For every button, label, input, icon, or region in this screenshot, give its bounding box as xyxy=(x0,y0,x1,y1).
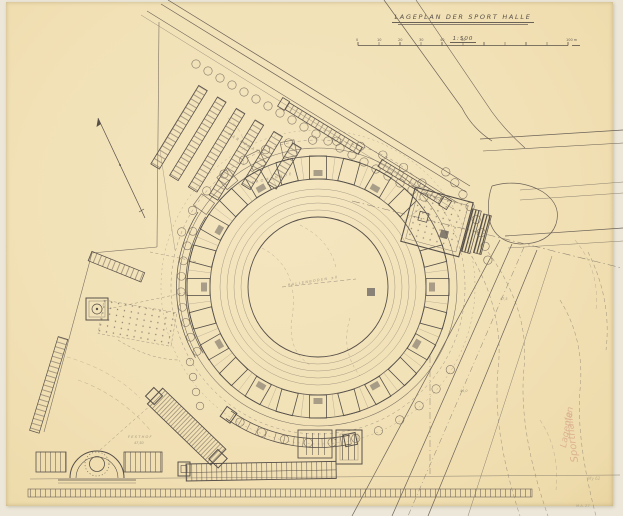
festhof-label: FESTHOF xyxy=(128,435,153,439)
main-axis-line xyxy=(352,201,622,474)
site-plan-drawing: 01020304050100 m PARKPLATZ PROMENADE HAL… xyxy=(0,0,623,516)
pencil-notes: My 62 M.A. 27 xyxy=(576,476,601,508)
west-boundary-building xyxy=(30,337,68,434)
elevation-b: 46,0 xyxy=(460,389,468,393)
field-marker-square xyxy=(367,288,375,296)
road-south xyxy=(352,240,552,516)
scale-tick-label: 40 xyxy=(440,38,444,42)
scale-tick-label: 50 xyxy=(461,38,465,42)
festhof-elevation: 47,50 xyxy=(134,441,144,445)
scale-tick-label: 100 m xyxy=(566,38,578,42)
arena-floor-label: HALLENBODEN ±0 xyxy=(288,275,339,287)
field-contours xyxy=(262,225,360,376)
scale-bar: 01020304050100 m xyxy=(356,38,580,46)
scanned-drawing-sheet: LAGEPLAN DER SPORT HALLE 1:500 xyxy=(0,0,623,516)
northwest-colonnade xyxy=(88,251,145,282)
pencil-note-1: My 62 xyxy=(588,476,601,481)
scale-tick-label: 0 xyxy=(356,38,358,42)
road-north-branch xyxy=(384,0,525,148)
boulevard-east xyxy=(480,130,623,248)
scale-tick-label: 30 xyxy=(419,38,423,42)
stadium xyxy=(161,130,475,444)
pencil-note-2: M.A. 27 xyxy=(576,504,590,508)
elevation-a: 47,5 xyxy=(500,297,508,301)
scale-tick-label: 10 xyxy=(377,38,381,42)
scale-tick-label: 20 xyxy=(398,38,402,42)
red-handwriting: Sporthalle Lageplan xyxy=(559,406,581,463)
perimeter-fence xyxy=(28,489,532,497)
dotted-court xyxy=(98,300,177,346)
north-arrow xyxy=(97,118,146,218)
